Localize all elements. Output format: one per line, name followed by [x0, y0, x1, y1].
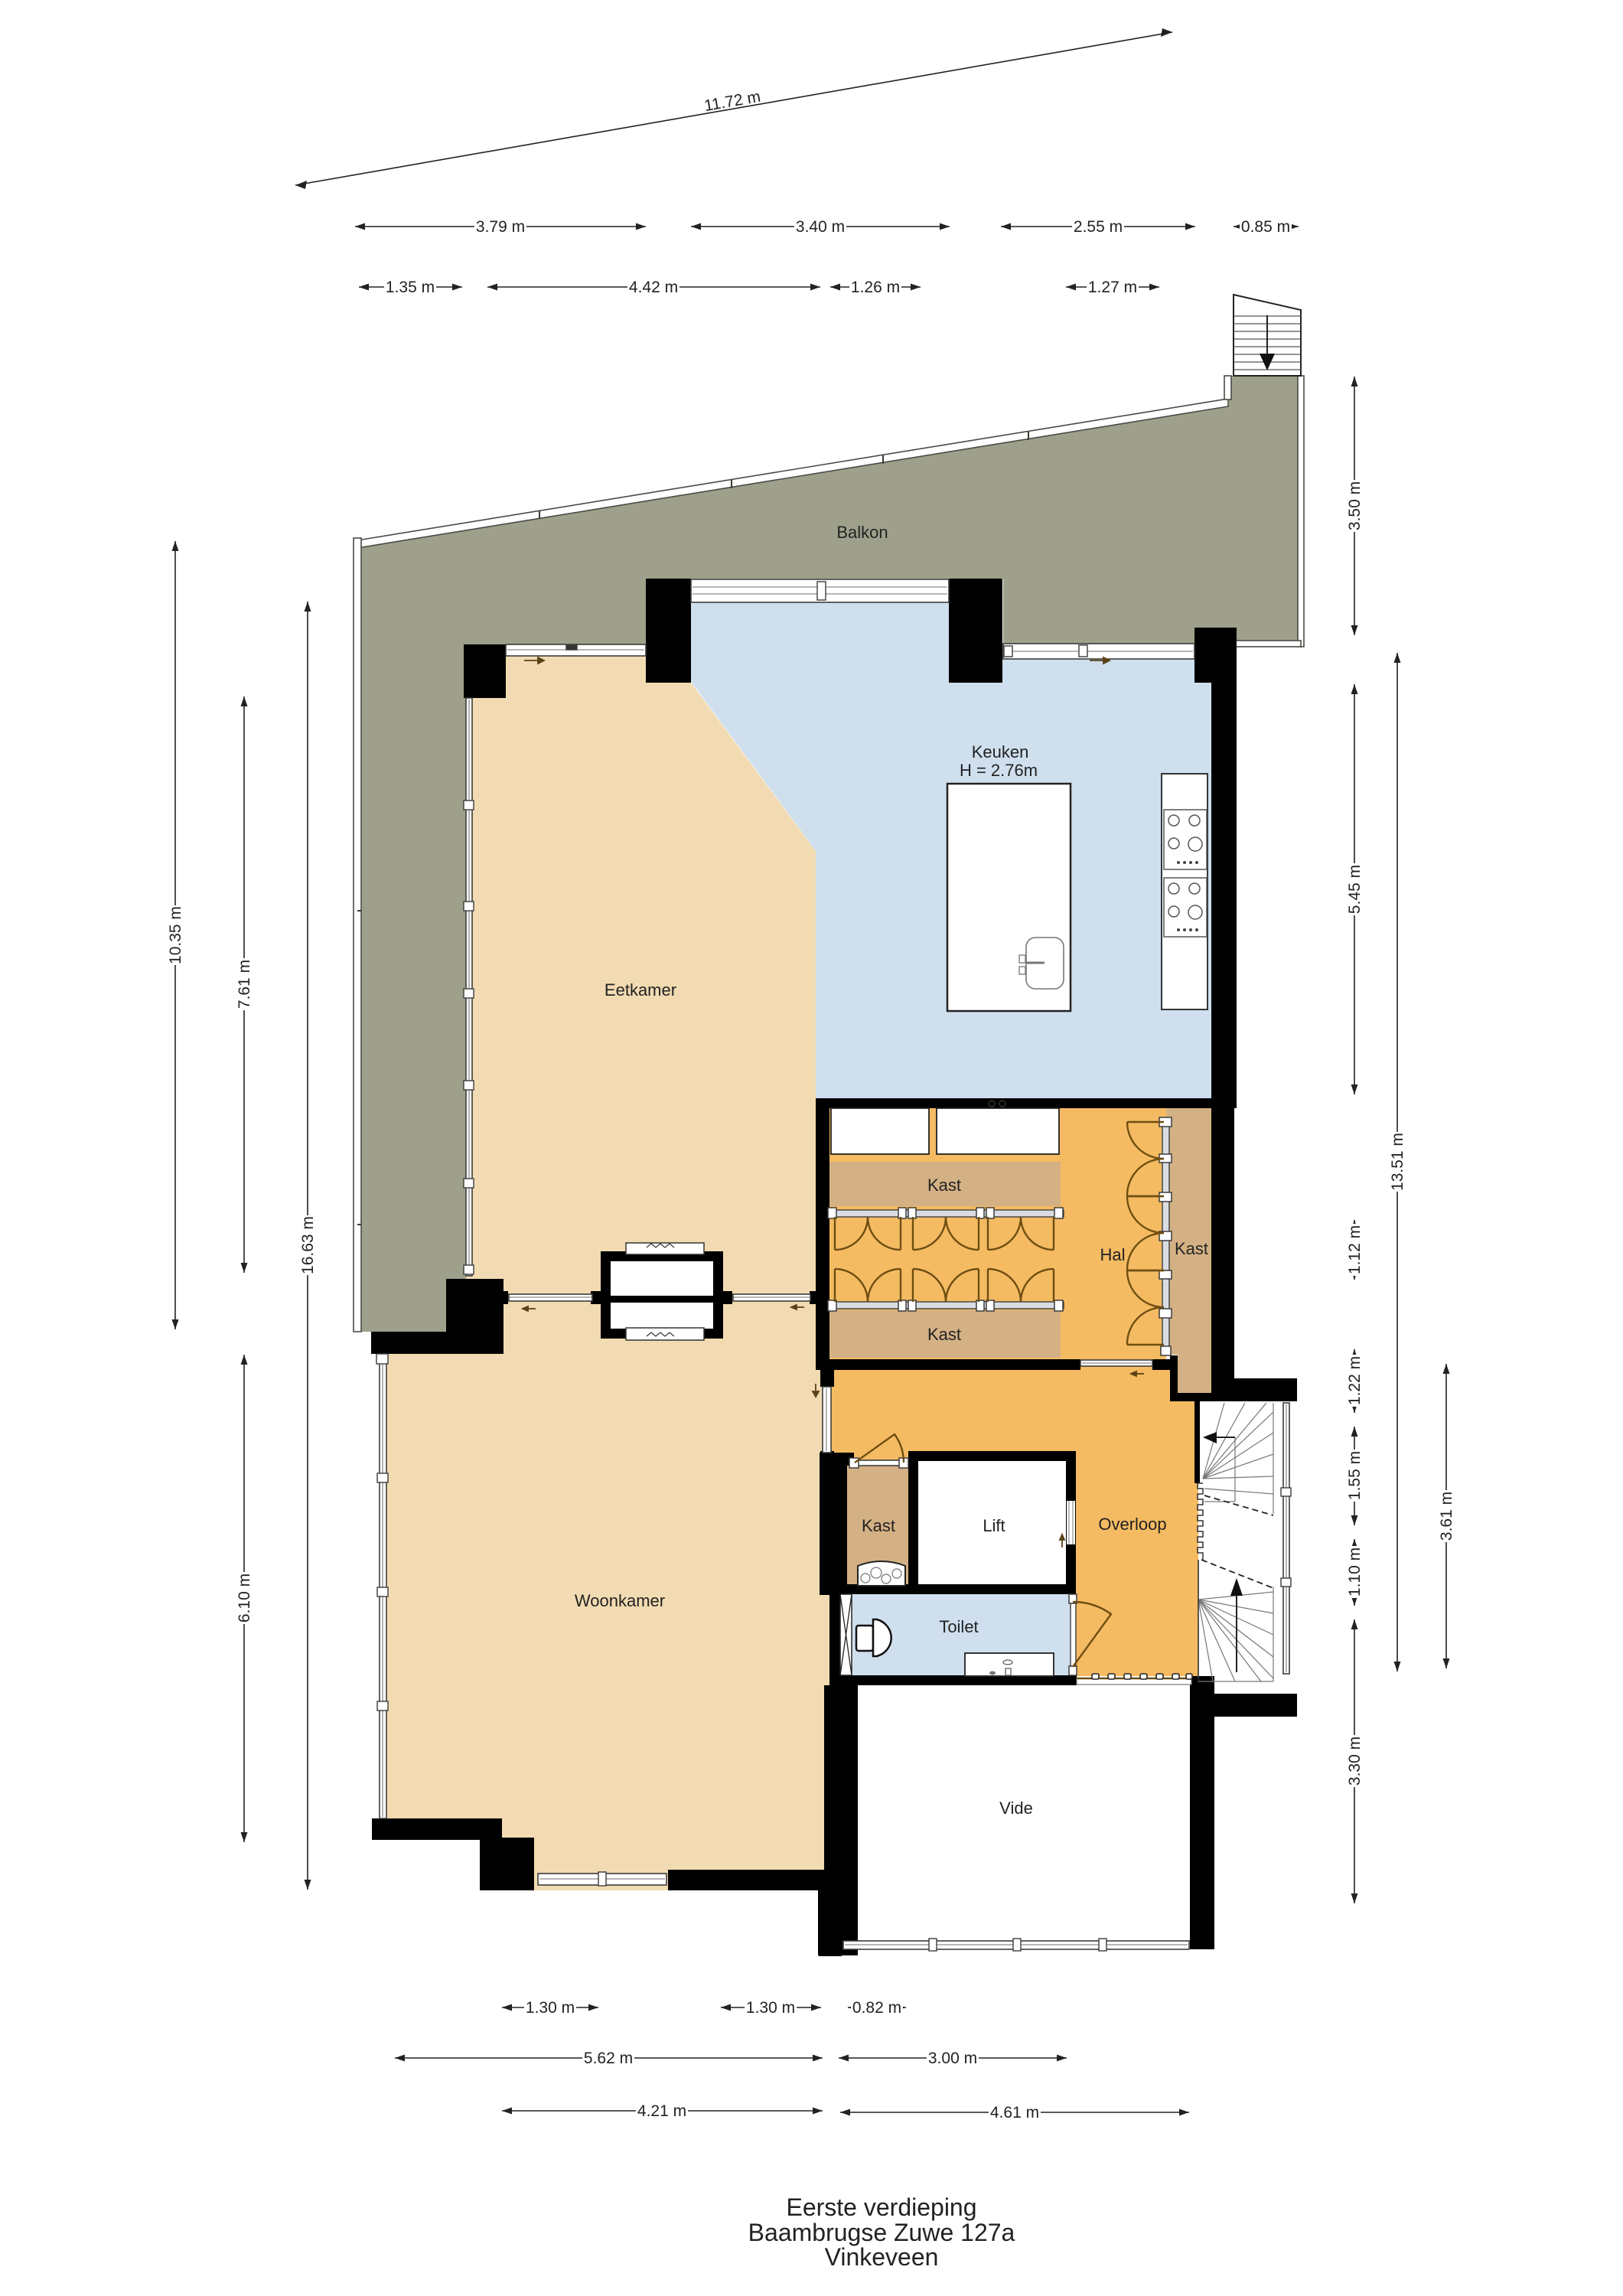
svg-text:1.22 m: 1.22 m: [1346, 1356, 1364, 1405]
svg-text:7.61 m: 7.61 m: [236, 960, 253, 1009]
svg-text:Vinkeveen: Vinkeveen: [825, 2243, 939, 2271]
svg-text:3.30 m: 3.30 m: [1346, 1737, 1364, 1786]
svg-text:10.35 m: 10.35 m: [167, 906, 184, 964]
svg-text:1.35 m: 1.35 m: [386, 279, 435, 296]
svg-text:Eetkamer: Eetkamer: [605, 980, 676, 1000]
svg-text:Kast: Kast: [1175, 1239, 1208, 1258]
svg-text:Woonkamer: Woonkamer: [575, 1591, 665, 1610]
svg-text:3.50 m: 3.50 m: [1346, 481, 1364, 530]
svg-text:Lift: Lift: [983, 1516, 1005, 1535]
svg-text:3.61 m: 3.61 m: [1438, 1492, 1455, 1541]
svg-text:3.40 m: 3.40 m: [796, 218, 845, 236]
svg-text:H = 2.76m: H = 2.76m: [960, 761, 1038, 780]
svg-text:6.10 m: 6.10 m: [236, 1574, 253, 1623]
svg-text:2.55 m: 2.55 m: [1074, 218, 1123, 236]
svg-text:Baambrugse Zuwe 127a: Baambrugse Zuwe 127a: [748, 2219, 1015, 2246]
svg-text:1.30 m: 1.30 m: [746, 1999, 795, 2017]
svg-text:0.85 m: 0.85 m: [1241, 218, 1290, 236]
svg-text:4.21 m: 4.21 m: [637, 2102, 686, 2120]
svg-text:Balkon: Balkon: [836, 523, 888, 542]
svg-text:4.61 m: 4.61 m: [990, 2104, 1039, 2122]
svg-text:Toilet: Toilet: [939, 1617, 978, 1636]
svg-text:0.82 m: 0.82 m: [852, 1999, 901, 2017]
svg-text:Kast: Kast: [862, 1516, 895, 1535]
svg-text:Kast: Kast: [927, 1325, 961, 1344]
svg-text:1.30 m: 1.30 m: [526, 1999, 575, 2017]
svg-text:1.27 m: 1.27 m: [1088, 279, 1137, 296]
svg-text:16.63 m: 16.63 m: [299, 1216, 317, 1274]
svg-text:Eerste verdieping: Eerste verdieping: [786, 2193, 976, 2221]
svg-text:1.12 m: 1.12 m: [1346, 1225, 1364, 1274]
svg-text:5.45 m: 5.45 m: [1346, 865, 1364, 914]
svg-text:1.55 m: 1.55 m: [1346, 1451, 1364, 1500]
svg-text:Hal: Hal: [1100, 1245, 1125, 1264]
svg-text:Keuken: Keuken: [972, 742, 1029, 762]
svg-text:3.79 m: 3.79 m: [476, 218, 525, 236]
svg-text:4.42 m: 4.42 m: [629, 279, 678, 296]
svg-text:Overloop: Overloop: [1098, 1515, 1166, 1534]
svg-text:Vide: Vide: [999, 1799, 1033, 1818]
svg-text:3.00 m: 3.00 m: [928, 2050, 977, 2067]
svg-text:1.10 m: 1.10 m: [1346, 1548, 1364, 1596]
svg-text:11.72 m: 11.72 m: [702, 88, 761, 115]
svg-text:1.26 m: 1.26 m: [851, 279, 900, 296]
svg-text:Kast: Kast: [927, 1176, 961, 1195]
svg-text:5.62 m: 5.62 m: [584, 2050, 633, 2067]
svg-text:13.51 m: 13.51 m: [1389, 1133, 1406, 1191]
